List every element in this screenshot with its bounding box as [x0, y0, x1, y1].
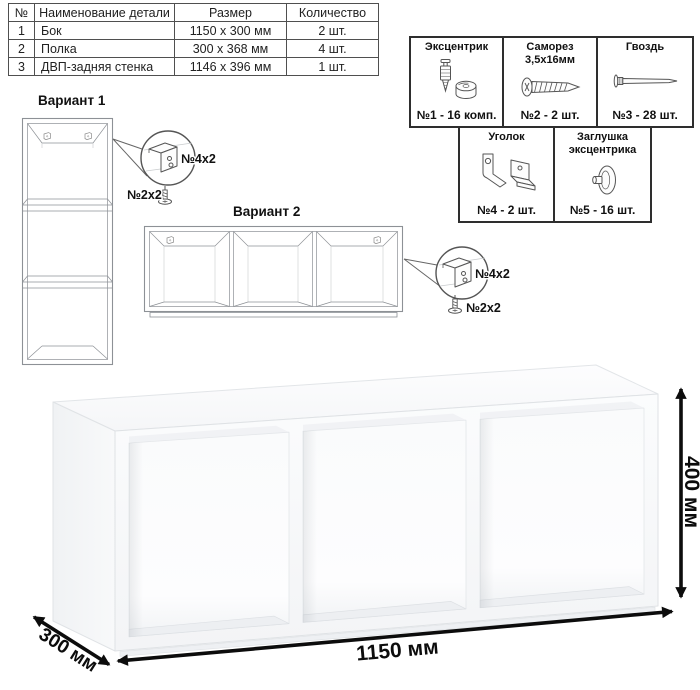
hardware-count: №4 - 2 шт.: [477, 203, 536, 217]
hardware-item-bracket: Уголок №4 - 2 шт.: [458, 126, 555, 223]
self-tapping-screw-icon: [518, 66, 582, 108]
table-cell: 1: [9, 22, 35, 40]
variant1-shelf-drawing: [23, 119, 113, 365]
variant2-screw-label: №2х2: [466, 301, 501, 315]
bracket-marker-icon: [44, 133, 51, 140]
bracket-marker-icon: [85, 133, 92, 140]
variant2-callout: №4х2 №2х2: [404, 247, 510, 315]
variant1-title: Вариант 1: [38, 93, 105, 108]
bracket-marker-icon: [167, 237, 174, 244]
table-cell: 2 шт.: [287, 22, 379, 40]
variant1-bracket-label: №4х2: [181, 152, 216, 166]
height-dimension-label: 400 мм: [680, 456, 700, 528]
assembly-instruction-sheet: №4х2 №2х2 №4х2 №2х2: [0, 0, 700, 690]
variant2-title: Вариант 2: [233, 204, 300, 219]
hardware-item-cap: Заглушка эксцентрика №5 - 16 шт.: [553, 126, 652, 223]
table-cell: Полка: [35, 40, 175, 58]
hardware-title: Эксцентрик: [425, 41, 488, 54]
table-cell: 4 шт.: [287, 40, 379, 58]
hardware-title: Заглушка эксцентрика: [557, 131, 648, 156]
table-cell: Бок: [35, 22, 175, 40]
bracket-marker-icon: [374, 237, 381, 244]
nail-icon: [611, 54, 679, 108]
hardware-title: Саморез 3,5х16мм: [506, 41, 594, 66]
table-cell: 1146 x 396 мм: [175, 58, 287, 76]
parts-table-header-row: № Наименование детали Размер Количество: [9, 4, 379, 22]
table-header-cell: Размер: [175, 4, 287, 22]
table-cell: 2: [9, 40, 35, 58]
hardware-count: №2 - 2 шт.: [521, 108, 580, 122]
table-row: 3 ДВП-задняя стенка 1146 x 396 мм 1 шт.: [9, 58, 379, 76]
table-cell: 1150 x 300 мм: [175, 22, 287, 40]
table-cell: 300 x 368 мм: [175, 40, 287, 58]
table-cell: 3: [9, 58, 35, 76]
hardware-item-eccentric: Эксцентрик №1 - 16 комп.: [409, 36, 504, 128]
variant1-callout: №4х2 №2х2: [113, 131, 216, 204]
hardware-title: Уголок: [488, 131, 524, 144]
table-cell: 1 шт.: [287, 58, 379, 76]
hardware-item-screw: Саморез 3,5х16мм №2 - 2 шт.: [502, 36, 598, 128]
table-header-cell: Наименование детали: [35, 4, 175, 22]
shelf-3d-render: [53, 365, 658, 656]
variant2-bracket-label: №4х2: [475, 267, 510, 281]
table-row: 1 Бок 1150 x 300 мм 2 шт.: [9, 22, 379, 40]
table-header-cell: №: [9, 4, 35, 22]
table-header-cell: Количество: [287, 4, 379, 22]
hardware-item-nail: Гвоздь №3 - 28 шт.: [596, 36, 694, 128]
hardware-count: №3 - 28 шт.: [612, 108, 678, 122]
table-row: 2 Полка 300 x 368 мм 4 шт.: [9, 40, 379, 58]
table-cell: ДВП-задняя стенка: [35, 58, 175, 76]
hardware-title: Гвоздь: [626, 41, 664, 54]
hardware-count: №5 - 16 шт.: [570, 203, 636, 217]
parts-table: № Наименование детали Размер Количество …: [8, 3, 379, 76]
variant1-screw-label: №2х2: [127, 188, 162, 202]
eccentric-cam-icon: [429, 54, 485, 108]
variant2-shelf-drawing: [145, 227, 403, 318]
hardware-count: №1 - 16 комп.: [417, 108, 497, 122]
cam-cap-icon: [583, 156, 623, 203]
corner-bracket-icon: [475, 144, 539, 203]
